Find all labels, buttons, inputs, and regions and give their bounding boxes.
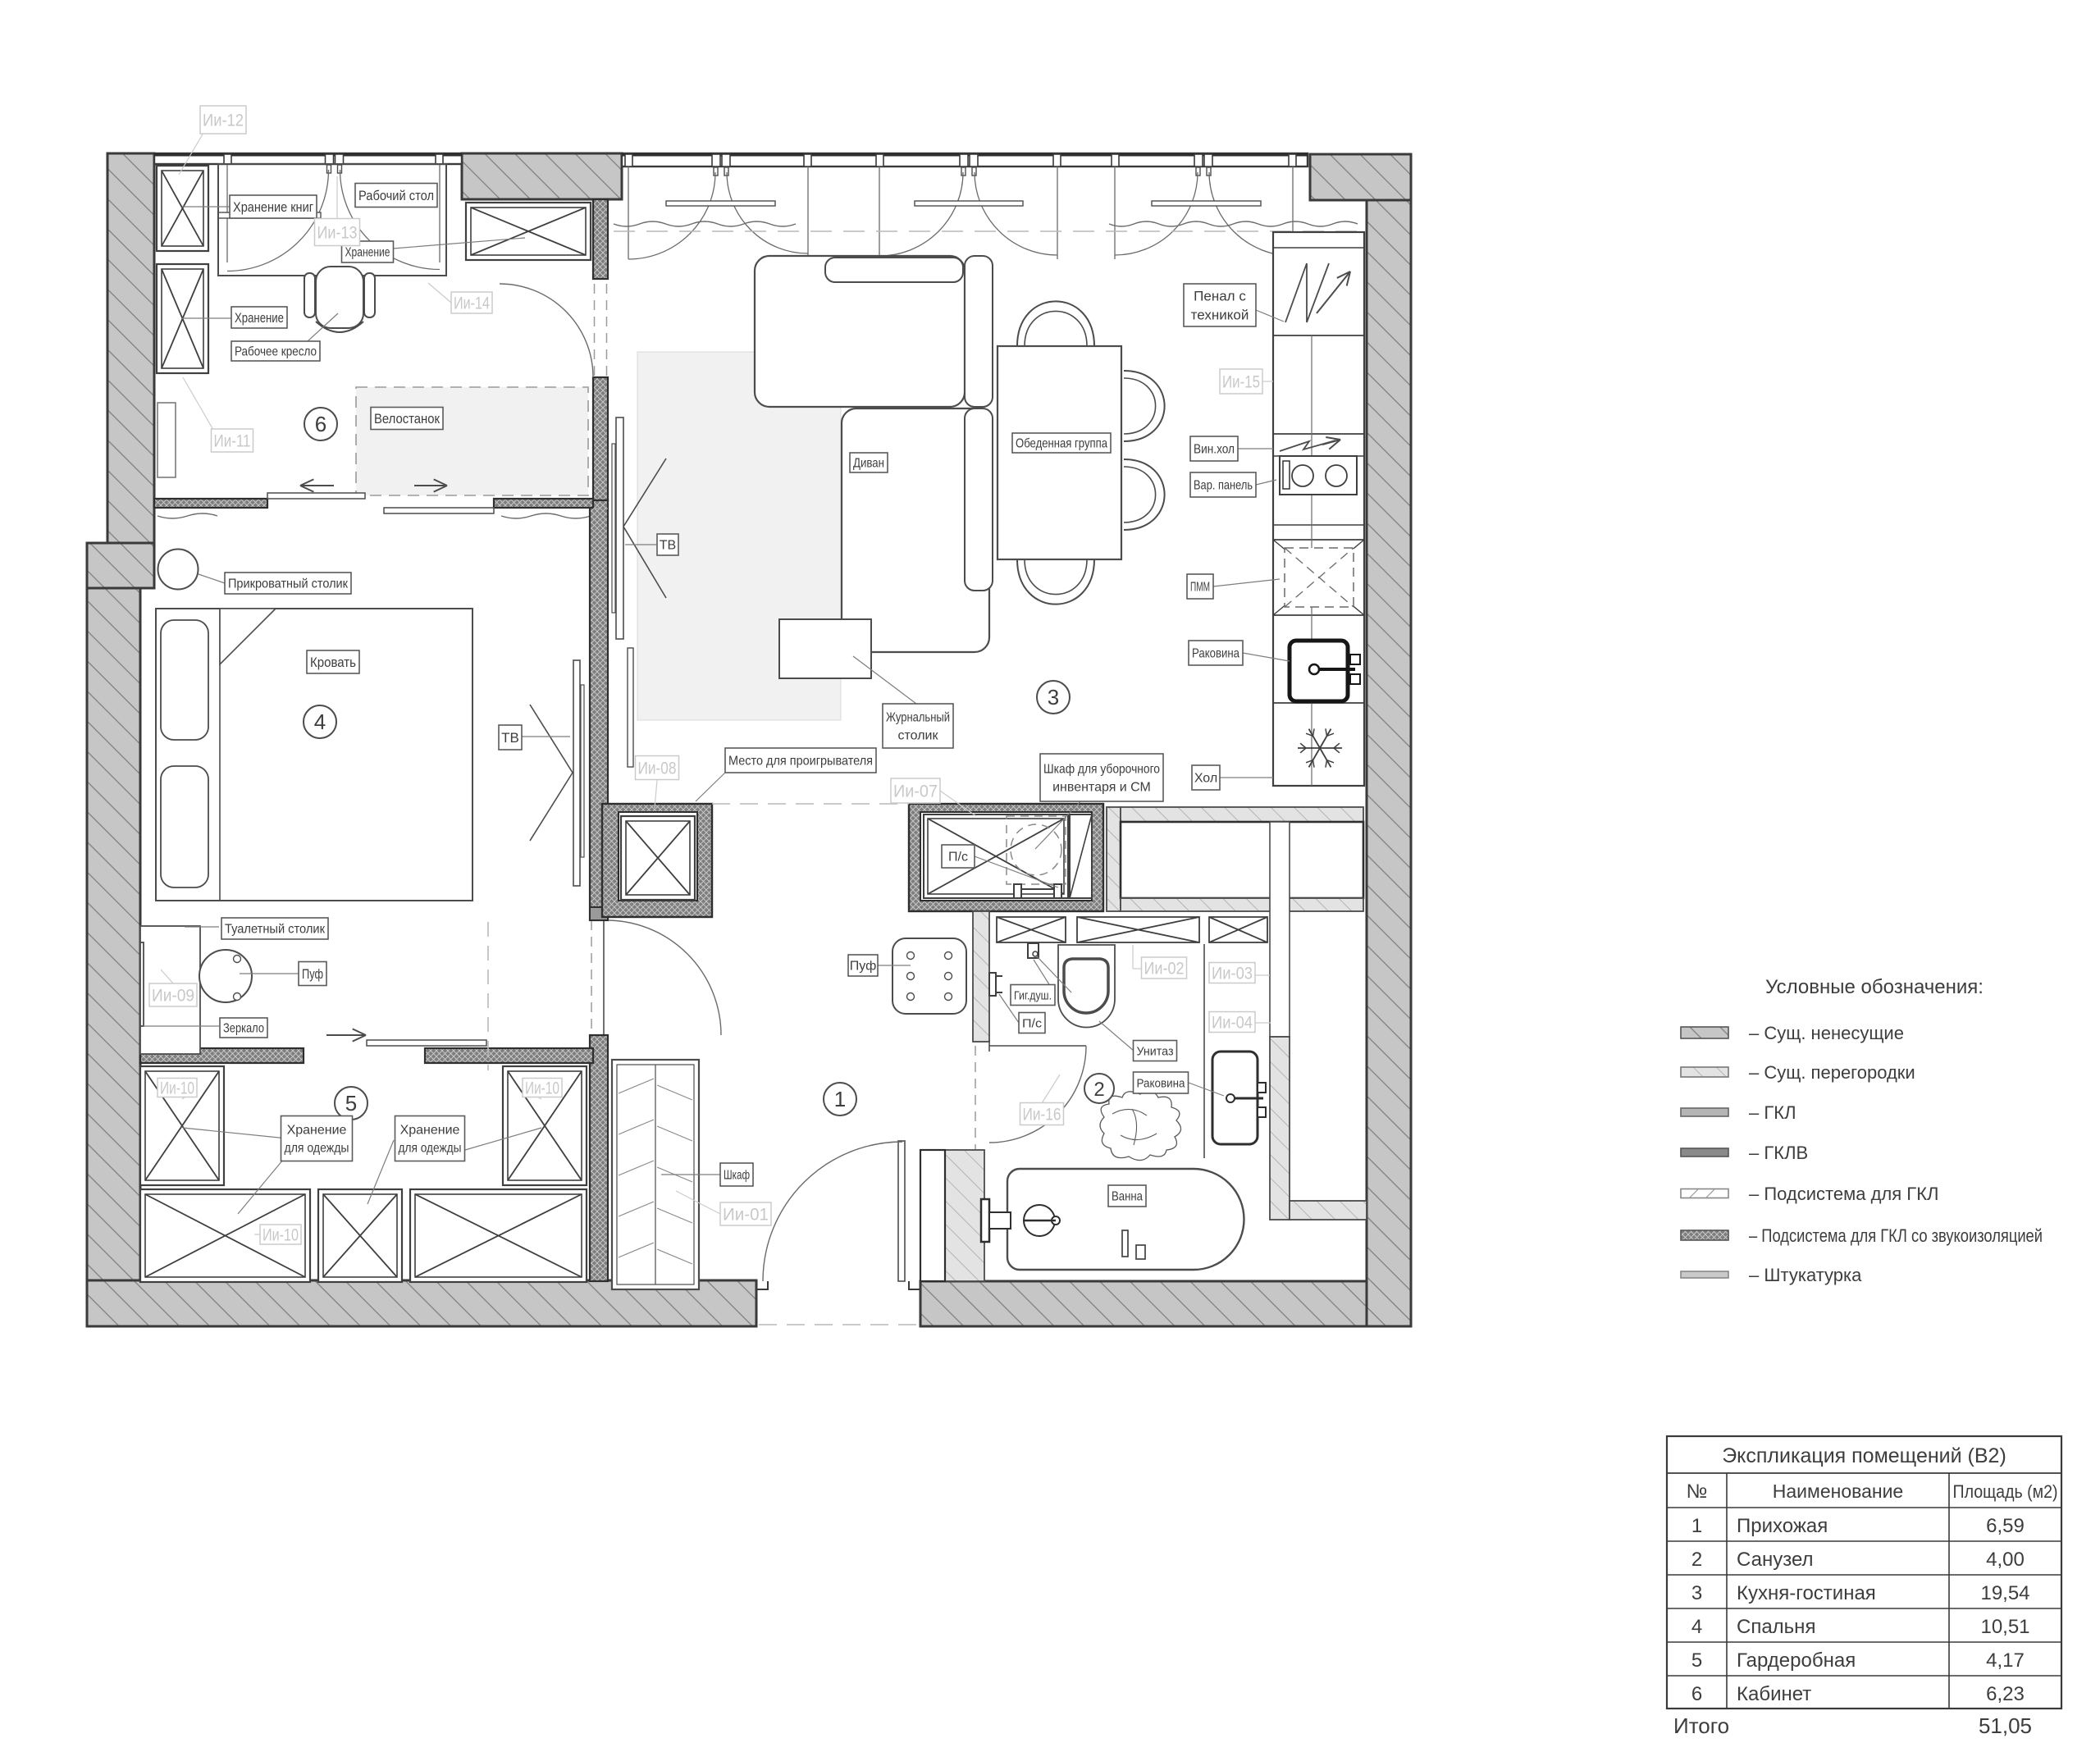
svg-text:Ии-10: Ии-10 [160,1079,194,1097]
svg-text:Прихожая: Прихожая [1737,1515,1828,1537]
svg-text:2: 2 [1093,1079,1104,1101]
svg-text:10,51: 10,51 [1980,1616,2029,1638]
svg-text:ТВ: ТВ [501,730,519,746]
svg-text:Прикроватный столик: Прикроватный столик [228,577,349,591]
svg-text:Пенал с: Пенал с [1194,288,1246,303]
svg-text:Ии-04: Ии-04 [1212,1013,1253,1032]
svg-text:6,59: 6,59 [1986,1515,2025,1537]
svg-text:Кухня-гостиная: Кухня-гостиная [1737,1582,1876,1604]
svg-text:ПММ: ПММ [1190,581,1210,595]
svg-text:для одежды: для одежды [285,1142,349,1156]
svg-text:4,00: 4,00 [1986,1549,2025,1571]
svg-text:Унитаз: Унитаз [1137,1044,1174,1058]
svg-text:Хранение: Хранение [400,1124,460,1138]
svg-text:– Подсистема для ГКЛ: – Подсистема для ГКЛ [1749,1184,1938,1204]
svg-text:столик: столик [898,729,939,743]
svg-text:Велостанок: Велостанок [374,411,440,427]
svg-text:для одежды: для одежды [399,1142,462,1156]
svg-text:Туалетный столик: Туалетный столик [225,923,326,937]
svg-text:Вин.хол: Вин.хол [1194,443,1235,457]
svg-text:Раковина: Раковина [1192,647,1239,661]
svg-text:Ии-01: Ии-01 [723,1205,769,1224]
svg-text:Раковина: Раковина [1137,1076,1186,1090]
svg-text:Журнальный: Журнальный [886,711,950,725]
svg-text:Ии-11: Ии-11 [214,431,251,450]
svg-text:Шкаф для уборочного: Шкаф для уборочного [1043,763,1160,777]
svg-text:Пуф: Пуф [850,960,876,974]
svg-text:Хранение книг: Хранение книг [233,199,313,215]
svg-text:Место для проигрывателя: Место для проигрывателя [728,755,873,769]
svg-text:ТВ: ТВ [660,539,676,553]
svg-text:Экспликация помещений (В2): Экспликация помещений (В2) [1722,1444,2006,1467]
svg-text:Рабочее кресло: Рабочее кресло [235,345,317,359]
svg-text:Зеркало: Зеркало [223,1022,264,1036]
svg-text:Ии-08: Ии-08 [638,759,677,778]
svg-text:5: 5 [345,1091,357,1116]
svg-text:Пуф: Пуф [302,966,323,982]
svg-text:4: 4 [1691,1616,1702,1638]
svg-text:3: 3 [1048,685,1059,709]
svg-text:1: 1 [1691,1515,1702,1537]
svg-text:6: 6 [1691,1683,1702,1705]
svg-text:техникой: техникой [1191,307,1249,322]
svg-text:Ии-02: Ии-02 [1144,959,1185,978]
svg-text:Итого: Итого [1673,1713,1729,1738]
svg-text:Диван: Диван [853,457,884,471]
svg-text:Условные обозначения:: Условные обозначения: [1765,976,1984,998]
svg-text:2: 2 [1691,1549,1702,1571]
svg-text:51,05: 51,05 [1979,1713,2032,1738]
svg-text:– Штукатурка: – Штукатурка [1749,1265,1862,1285]
svg-text:4: 4 [314,709,326,734]
svg-text:Рабочий стол: Рабочий стол [358,188,434,203]
svg-text:– Подсистема для ГКЛ со звукои: – Подсистема для ГКЛ со звукоизоляцией [1749,1225,2043,1246]
svg-text:Хол: Хол [1194,772,1217,786]
svg-text:Наименование: Наименование [1773,1481,1903,1502]
svg-text:– ГКЛВ: – ГКЛВ [1749,1143,1808,1163]
svg-text:Ии-15: Ии-15 [1222,372,1260,391]
svg-text:Хранение: Хранение [235,310,284,326]
svg-text:– Сущ. ненесущие: – Сущ. ненесущие [1749,1023,1904,1043]
svg-text:Ии-07: Ии-07 [893,782,938,801]
svg-text:Ванна: Ванна [1112,1190,1143,1204]
svg-text:Ии-16: Ии-16 [1023,1105,1061,1124]
svg-text:Санузел: Санузел [1737,1549,1814,1571]
svg-text:– Сущ. перегородки: – Сущ. перегородки [1749,1062,1915,1083]
svg-text:Ии-03: Ии-03 [1212,964,1253,983]
svg-text:5: 5 [1691,1649,1702,1672]
svg-text:Ии-13: Ии-13 [317,223,358,242]
svg-text:Гиг.душ.: Гиг.душ. [1014,988,1052,1002]
svg-text:6: 6 [315,412,326,436]
svg-text:Хранение: Хранение [345,245,390,259]
svg-text:6,23: 6,23 [1986,1683,2025,1705]
svg-text:– ГКЛ: – ГКЛ [1749,1102,1796,1123]
svg-text:Кабинет: Кабинет [1737,1683,1811,1705]
svg-text:Ии-14: Ии-14 [454,294,490,313]
svg-text:Ии-09: Ии-09 [152,986,194,1005]
svg-text:Вар. панель: Вар. панель [1194,479,1253,493]
svg-text:Ии-10: Ии-10 [525,1079,559,1097]
svg-text:Обеденная группа: Обеденная группа [1016,437,1107,451]
svg-text:П/с: П/с [1022,1016,1043,1030]
svg-text:Шкаф: Шкаф [724,1169,750,1183]
svg-text:Ии-12: Ии-12 [203,111,244,130]
svg-text:Гардеробная: Гардеробная [1737,1649,1856,1672]
svg-text:Кровать: Кровать [310,655,356,670]
svg-text:Площадь (м2): Площадь (м2) [1953,1481,2058,1502]
svg-text:3: 3 [1691,1582,1702,1604]
svg-text:инвентаря и СМ: инвентаря и СМ [1052,781,1151,795]
svg-text:4,17: 4,17 [1986,1649,2025,1672]
svg-text:1: 1 [834,1087,846,1111]
svg-text:№: № [1687,1481,1708,1503]
svg-text:19,54: 19,54 [1980,1582,2029,1604]
svg-text:Хранение: Хранение [287,1124,347,1138]
svg-text:П/с: П/с [948,851,968,865]
svg-text:Ии-10: Ии-10 [262,1225,299,1244]
svg-text:Спальня: Спальня [1737,1616,1815,1638]
